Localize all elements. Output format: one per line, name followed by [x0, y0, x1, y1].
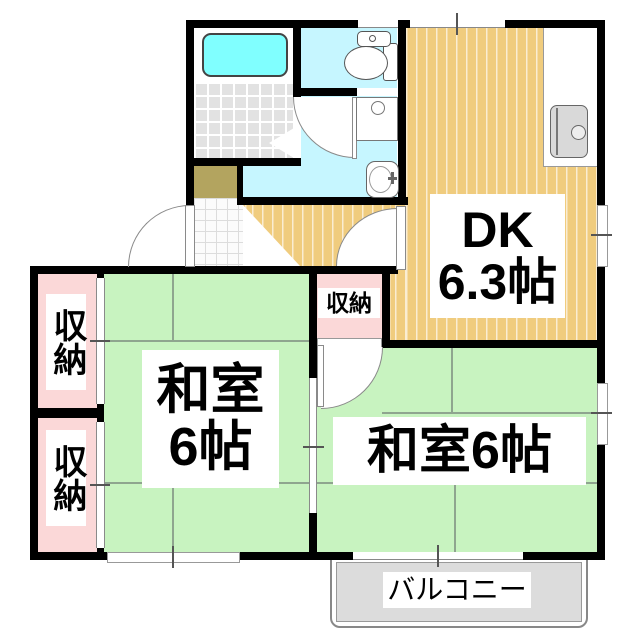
window-toilet-top — [358, 20, 398, 28]
entrance-door-arc — [128, 205, 190, 267]
washitsu-left-label: 和室 6帖 — [142, 350, 279, 488]
kitchen-sink-divider — [556, 108, 558, 155]
fusuma-tick — [303, 446, 324, 448]
tatami-line — [451, 348, 453, 413]
washitsu-right-door-leaf — [317, 345, 324, 407]
wall-bath-toilet — [293, 20, 301, 97]
washroom-floor-leg — [243, 166, 301, 197]
wall-block-left — [30, 266, 38, 560]
washing-machine-drain — [371, 101, 385, 115]
dk-label-name: DK — [461, 204, 533, 257]
wash-basin-faucet-handle — [388, 177, 397, 180]
wall-block-top — [30, 266, 398, 274]
dk-door-leaf — [396, 206, 406, 270]
wall-genkan-divider — [237, 166, 243, 205]
genkan-tile-floor — [194, 198, 243, 266]
balcony-label: バルコニー — [383, 572, 531, 608]
balcony-label-text: バルコニー — [387, 575, 526, 604]
wall-dk-left — [398, 20, 406, 205]
closet-middle-label: 収納 — [318, 288, 380, 318]
wall-closet-middle-right — [382, 266, 390, 348]
window-dk-right — [597, 205, 608, 267]
toilet-bowl — [344, 46, 388, 80]
window-tick — [437, 545, 439, 567]
wall-left-sanitary — [186, 20, 194, 205]
wall-closet-divider — [38, 408, 104, 418]
closet-middle-label-text: 収納 — [326, 291, 372, 315]
wall-washroom-bottom — [243, 197, 408, 205]
window-tick — [456, 13, 458, 35]
wall-right — [597, 20, 605, 560]
toilet-button — [369, 35, 376, 42]
washitsu-left-label-size: 6帖 — [168, 419, 252, 476]
bathtub — [202, 33, 288, 77]
washitsu-right-label-text: 和室6帖 — [367, 424, 552, 479]
genkan-step — [194, 166, 237, 198]
window-tick — [172, 546, 174, 568]
closet-left-top-label-text: 収納 — [48, 308, 84, 376]
washitsu-left-label-name: 和室 — [157, 362, 265, 419]
dk-label: DK 6.3帖 — [430, 194, 565, 318]
closet-left-bottom-label-text: 収納 — [48, 444, 84, 512]
washitsu-right-label: 和室6帖 — [333, 417, 586, 485]
fusuma-tick — [90, 484, 110, 486]
window-washitsu-right — [597, 383, 608, 445]
wall-bath-bottom — [186, 158, 301, 166]
tatami-line — [172, 482, 174, 552]
window-tick — [591, 234, 612, 236]
wall-dk-bottom — [382, 340, 605, 348]
tatami-line — [454, 482, 456, 552]
closet-left-bottom-label: 収納 — [46, 430, 86, 526]
tatami-line — [382, 412, 597, 414]
fusuma-tick — [90, 340, 110, 342]
kitchen-faucet — [571, 125, 586, 140]
closet-left-top-label: 収納 — [46, 294, 86, 390]
tatami-line — [172, 274, 174, 341]
floor-plan: DK 6.3帖 和室 6帖 和室6帖 収納 収納 収納 バルコニー — [0, 0, 640, 640]
window-tick — [591, 412, 612, 414]
dk-label-size: 6.3帖 — [438, 256, 558, 309]
wall-toilet-bottom — [301, 88, 357, 96]
tatami-line — [104, 340, 309, 342]
